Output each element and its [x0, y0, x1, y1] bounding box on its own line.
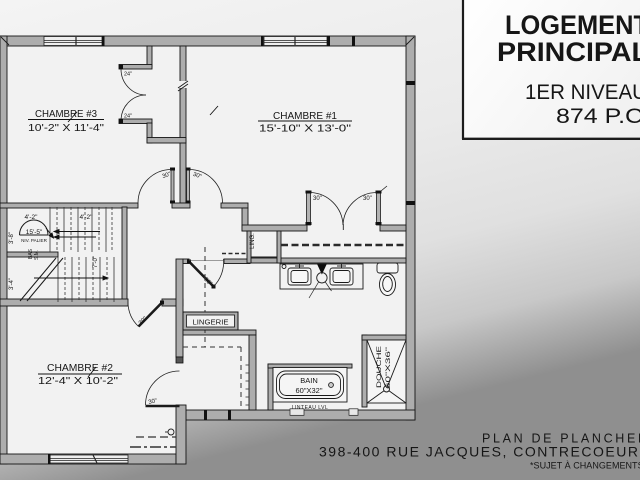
- svg-text:BAIN: BAIN: [300, 376, 318, 385]
- svg-text:7'-0": 7'-0": [93, 256, 99, 268]
- svg-text:DOUCHE: DOUCHE: [376, 345, 383, 388]
- svg-text:874 P.C.: 874 P.C.: [556, 105, 640, 128]
- svg-text:15'-5": 15'-5": [26, 229, 43, 236]
- svg-text:4'-2": 4'-2": [25, 214, 39, 221]
- svg-text:LINGERIE: LINGERIE: [193, 318, 229, 327]
- svg-text:4'-2": 4'-2": [80, 214, 94, 221]
- svg-text:60"X36": 60"X36": [385, 346, 392, 389]
- svg-text:60"X32": 60"X32": [295, 386, 322, 395]
- svg-text:LING.: LING.: [250, 233, 256, 249]
- svg-text:3'-8": 3'-8": [9, 232, 15, 244]
- svg-text:24": 24": [124, 72, 132, 78]
- svg-text:PRINCIPAL: PRINCIPAL: [497, 37, 640, 67]
- svg-text:LINTEAU LVL: LINTEAU LVL: [292, 405, 329, 411]
- svg-text:CHAMBRE #2: CHAMBRE #2: [47, 362, 113, 374]
- svg-text:CHAMBRE #1: CHAMBRE #1: [273, 110, 337, 122]
- svg-text:S.M.: S.M.: [34, 250, 40, 260]
- svg-text:*SUJET À CHANGEMENTS SANS PRÉA: *SUJET À CHANGEMENTS SANS PRÉAVIS: [530, 461, 640, 471]
- svg-text:30": 30": [363, 196, 372, 202]
- svg-text:10'-2" X 11'-4": 10'-2" X 11'-4": [28, 122, 104, 134]
- svg-text:24": 24": [124, 114, 132, 120]
- svg-text:CHAMBRE #3: CHAMBRE #3: [35, 108, 97, 120]
- svg-text:1ER NIVEAU: 1ER NIVEAU: [525, 81, 640, 104]
- svg-text:398-400 RUE JACQUES, CONTRECOE: 398-400 RUE JACQUES, CONTRECOEUR: [319, 444, 638, 460]
- svg-text:NIV. PALIER: NIV. PALIER: [21, 238, 47, 243]
- svg-text:3'-4": 3'-4": [9, 278, 15, 290]
- svg-text:12'-4" X 10'-2": 12'-4" X 10'-2": [38, 375, 118, 387]
- svg-text:LOGEMENT: LOGEMENT: [505, 10, 640, 40]
- svg-text:30": 30": [313, 196, 322, 202]
- svg-text:15'-10" X 13'-0": 15'-10" X 13'-0": [259, 123, 351, 135]
